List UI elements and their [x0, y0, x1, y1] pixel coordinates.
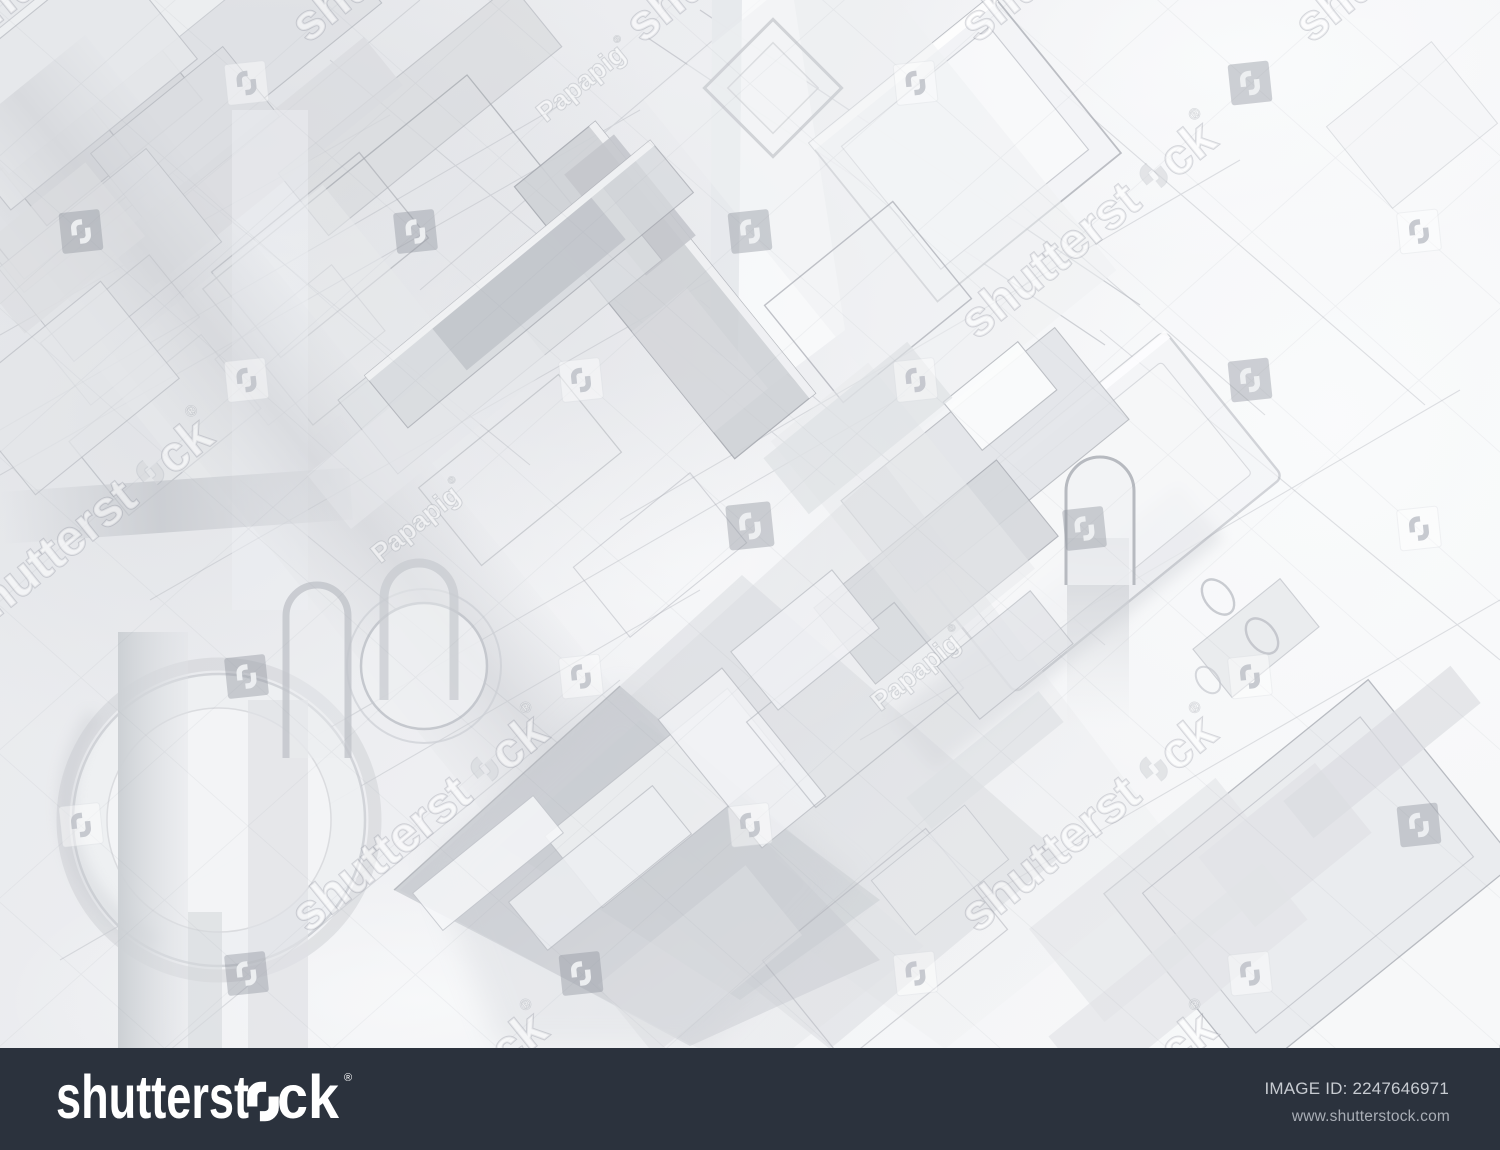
svg-text:IMAGE ID: 2247646971: IMAGE ID: 2247646971: [1264, 1079, 1449, 1098]
svg-text:www.shutterstock.com: www.shutterstock.com: [1291, 1108, 1450, 1125]
svg-text:®: ®: [344, 1072, 352, 1084]
svg-text:ck: ck: [277, 1063, 339, 1131]
svg-text:shutterst: shutterst: [56, 1063, 249, 1131]
